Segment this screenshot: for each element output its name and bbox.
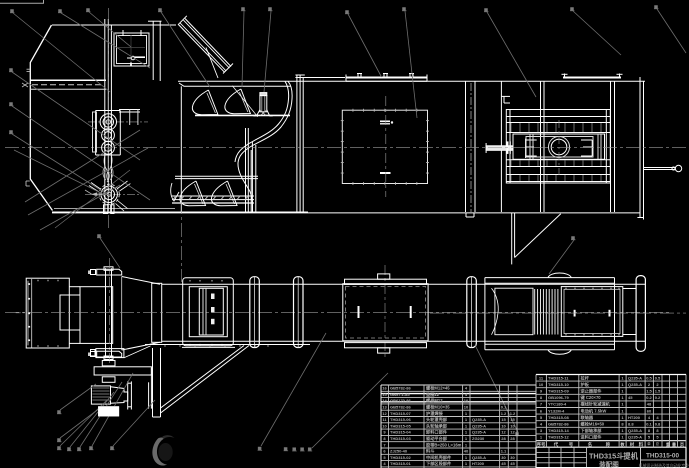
svg-text:ZG230: ZG230: [472, 436, 485, 441]
svg-text:THD315-09: THD315-09: [548, 389, 569, 394]
svg-text:YTC180-4: YTC180-4: [548, 402, 567, 407]
svg-text:10: 10: [501, 423, 506, 428]
svg-text:Q235-A: Q235-A: [472, 417, 486, 422]
svg-text:1.1: 1.1: [501, 449, 507, 454]
svg-text:Q235-A: Q235-A: [628, 375, 642, 380]
svg-text:页: 页: [680, 441, 684, 447]
svg-text:装配图: 装配图: [598, 460, 619, 468]
svg-text:驱动平台部: 驱动平台部: [426, 435, 448, 442]
svg-text:护板: 护板: [581, 381, 590, 388]
svg-text:料斗: 料斗: [426, 448, 435, 455]
svg-text:垫圈12: 垫圈12: [426, 391, 440, 398]
svg-text:号: 号: [569, 441, 574, 448]
svg-text:10: 10: [464, 398, 469, 403]
svg-text:Q235-A: Q235-A: [628, 435, 642, 440]
svg-text:GB5782-86: GB5782-86: [548, 422, 569, 427]
svg-text:名: 名: [588, 441, 592, 448]
svg-text:THD315-01: THD315-01: [390, 461, 411, 466]
svg-text:28: 28: [510, 436, 515, 441]
svg-text:逆止器部件: 逆止器部件: [581, 388, 603, 395]
svg-text:卸料口部件: 卸料口部件: [426, 429, 448, 436]
svg-text:HT200: HT200: [472, 461, 485, 466]
svg-text:14: 14: [382, 398, 387, 403]
svg-text:48: 48: [647, 402, 652, 407]
svg-text:THD315-03: THD315-03: [390, 436, 411, 441]
svg-text:8.8: 8.8: [628, 422, 634, 427]
svg-text:下部区段部件: 下部区段部件: [426, 460, 452, 467]
svg-text:头轮轴承部: 头轮轴承部: [426, 422, 448, 429]
svg-text:THD315-14: THD315-14: [548, 428, 569, 433]
svg-text:机械设计制造及其自动化专业: 机械设计制造及其自动化专业: [639, 463, 689, 468]
svg-text:GB5782-86: GB5782-86: [390, 386, 411, 391]
svg-text:45: 45: [501, 461, 506, 466]
svg-text:THD315-12: THD315-12: [548, 435, 569, 440]
svg-text:Q235-A: Q235-A: [472, 430, 486, 435]
svg-text:30: 30: [510, 455, 515, 460]
svg-text:28: 28: [501, 436, 506, 441]
svg-text:10: 10: [510, 423, 515, 428]
svg-text:1.2: 1.2: [501, 411, 507, 416]
svg-text:10: 10: [539, 382, 544, 387]
svg-text:材: 材: [630, 441, 635, 448]
svg-text:重: 重: [666, 441, 670, 447]
svg-text:键 C20×70: 键 C20×70: [580, 394, 602, 401]
svg-text:12: 12: [382, 411, 387, 416]
svg-text:进料口部件: 进料口部件: [581, 434, 603, 441]
svg-text:电动机 7.5kW: 电动机 7.5kW: [581, 407, 607, 414]
svg-text:1.5: 1.5: [646, 389, 652, 394]
svg-text:联轴器: 联轴器: [581, 414, 594, 421]
svg-text:头轮罩壳部: 头轮罩壳部: [426, 416, 448, 423]
svg-text:0.8: 0.8: [655, 422, 661, 427]
svg-text:Q235-A: Q235-A: [472, 423, 486, 428]
svg-text:13: 13: [382, 405, 387, 410]
svg-text:THD315-05: THD315-05: [390, 423, 411, 428]
svg-text:螺栓M10×35: 螺栓M10×35: [426, 404, 450, 411]
svg-text:ZJ250-40: ZJ250-40: [390, 449, 408, 454]
svg-text:GB6170-86: GB6170-86: [390, 398, 411, 403]
svg-text:THD315-02: THD315-02: [390, 455, 411, 460]
svg-text:GB5782-86: GB5782-86: [390, 405, 411, 410]
svg-text:THD315-07: THD315-07: [390, 411, 411, 416]
svg-text:量: 量: [672, 441, 676, 447]
svg-text:数: 数: [620, 441, 625, 447]
svg-text:Q235-A: Q235-A: [628, 428, 642, 433]
svg-text:THD315-06: THD315-06: [390, 417, 411, 422]
svg-text:THD315-00: THD315-00: [646, 452, 679, 459]
svg-text:序号: 序号: [537, 441, 546, 448]
svg-text:30: 30: [501, 455, 506, 460]
svg-text:拉杆: 拉杆: [581, 374, 590, 381]
svg-text:40: 40: [464, 449, 469, 454]
svg-text:15: 15: [382, 392, 387, 397]
svg-text:1.2: 1.2: [510, 411, 516, 416]
svg-text:Y132M-4: Y132M-4: [548, 408, 565, 413]
svg-text:螺栓M12×45: 螺栓M12×45: [426, 385, 450, 392]
svg-text:THD315-08: THD315-08: [548, 415, 569, 420]
svg-text:0.1: 0.1: [646, 422, 652, 427]
svg-text:16: 16: [382, 386, 387, 391]
svg-text:10: 10: [464, 405, 469, 410]
svg-text:胶带B=250 L=16m: 胶带B=250 L=16m: [426, 441, 462, 448]
svg-text:料: 料: [639, 441, 644, 448]
svg-text:螺母M12: 螺母M12: [426, 397, 443, 404]
svg-text:0.5: 0.5: [646, 375, 652, 380]
svg-text:45: 45: [628, 395, 633, 400]
svg-text:0.2: 0.2: [646, 395, 652, 400]
svg-text:THD315斗提机: THD315斗提机: [589, 452, 639, 461]
svg-text:下部轴承部: 下部轴承部: [581, 427, 603, 434]
svg-text:10: 10: [382, 423, 387, 428]
svg-text:GB1096-79: GB1096-79: [548, 395, 569, 400]
svg-text:0.2: 0.2: [655, 395, 661, 400]
svg-text:THD315-11: THD315-11: [548, 375, 569, 380]
svg-text:0.1: 0.1: [501, 405, 507, 410]
svg-text:15: 15: [501, 417, 506, 422]
svg-text:THD315-10: THD315-10: [548, 382, 569, 387]
svg-text:代: 代: [553, 441, 559, 448]
svg-text:0.5: 0.5: [655, 375, 661, 380]
svg-text:GB97.1-85: GB97.1-85: [390, 392, 410, 397]
svg-text:称: 称: [606, 441, 611, 448]
svg-text:螺栓M16×50: 螺栓M16×50: [581, 421, 605, 428]
svg-text:60: 60: [647, 408, 652, 413]
svg-text:Q235-A: Q235-A: [628, 382, 642, 387]
svg-text:HT200: HT200: [628, 415, 641, 420]
svg-text:Q235-A: Q235-A: [472, 455, 486, 460]
svg-text:15: 15: [510, 417, 515, 422]
svg-text:中间机壳部件: 中间机壳部件: [426, 454, 452, 461]
svg-text:THD315-04: THD315-04: [390, 430, 411, 435]
svg-text:1.5: 1.5: [655, 389, 661, 394]
svg-text:12: 12: [501, 430, 506, 435]
svg-text:护罩焊接: 护罩焊接: [426, 410, 444, 417]
svg-text:12: 12: [510, 430, 515, 435]
svg-text:摆线针轮减速机: 摆线针轮减速机: [581, 401, 611, 408]
svg-text:45: 45: [510, 461, 515, 466]
